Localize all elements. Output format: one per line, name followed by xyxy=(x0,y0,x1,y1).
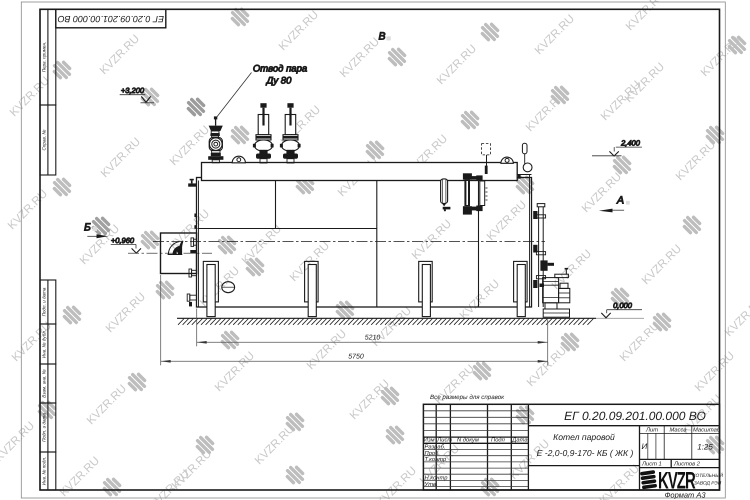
svg-text:KVZR.RU: KVZR.RU xyxy=(240,223,284,267)
svg-text:Взам. инв. №: Взам. инв. № xyxy=(42,369,47,397)
svg-text:KVZR.RU: KVZR.RU xyxy=(277,9,321,53)
svg-text:Б: Б xyxy=(84,222,91,234)
svg-text:+3,200: +3,200 xyxy=(121,86,145,95)
svg-text:KVZR.RU: KVZR.RU xyxy=(198,265,242,309)
svg-text:KVZR.RU: KVZR.RU xyxy=(598,463,642,500)
svg-text:KVZR.RU: KVZR.RU xyxy=(599,79,643,123)
svg-text:Подп. и дата: Подп. и дата xyxy=(42,287,47,316)
svg-text:Инв. № подл.: Инв. № подл. xyxy=(42,457,47,486)
svg-text:Инв. № дубл.: Инв. № дубл. xyxy=(42,330,47,358)
svg-text:KVZR.RU: KVZR.RU xyxy=(485,199,529,243)
svg-text:KVZR.RU: KVZR.RU xyxy=(104,291,148,335)
svg-text:Т.контр: Т.контр xyxy=(425,457,448,463)
svg-text:ЕГ 0.20.09.201.00.000 ВО: ЕГ 0.20.09.201.00.000 ВО xyxy=(564,409,706,423)
svg-text:KVZR.RU: KVZR.RU xyxy=(508,438,552,482)
svg-text:KVZR.RU: KVZR.RU xyxy=(524,90,568,134)
svg-text:Масса: Масса xyxy=(670,428,688,434)
svg-text:Дата: Дата xyxy=(511,438,528,444)
svg-text:ЕГ 0.20.09.201.00.000 ВО: ЕГ 0.20.09.201.00.000 ВО xyxy=(58,14,164,24)
svg-text:KVZR.RU: KVZR.RU xyxy=(99,136,143,180)
svg-text:KVZR.RU: KVZR.RU xyxy=(435,43,479,87)
svg-text:Лит: Лит xyxy=(645,428,658,434)
svg-text:KVZR.RU: KVZR.RU xyxy=(338,36,382,80)
svg-text:Ду 80: Ду 80 xyxy=(266,76,292,87)
svg-text:Масштаб: Масштаб xyxy=(693,427,721,434)
svg-text:KVZR.RU: KVZR.RU xyxy=(6,188,50,232)
svg-text:KVZR.RU: KVZR.RU xyxy=(0,420,37,464)
svg-text:ЗАВОД РЭП: ЗАВОД РЭП xyxy=(694,481,722,487)
svg-text:5750: 5750 xyxy=(348,353,364,360)
svg-text:Подп. и дата: Подп. и дата xyxy=(42,413,47,442)
svg-text:KVZR.RU: KVZR.RU xyxy=(580,171,624,215)
svg-text:KVZR.RU: KVZR.RU xyxy=(168,208,212,252)
svg-text:N докум: N докум xyxy=(457,437,479,444)
svg-text:Отвод пара: Отвод пара xyxy=(253,64,307,75)
svg-text:KVZR.RU: KVZR.RU xyxy=(213,350,257,394)
svg-text:Изм: Изм xyxy=(424,438,435,444)
svg-text:KVZR.RU: KVZR.RU xyxy=(624,0,668,33)
svg-text:5210: 5210 xyxy=(365,334,381,341)
svg-text:KVZR.RU: KVZR.RU xyxy=(693,350,737,394)
svg-text:Все размеры для справок: Все размеры для справок xyxy=(430,394,505,401)
svg-text:Перв. примен.: Перв. примен. xyxy=(42,42,47,73)
svg-text:KVZR.RU: KVZR.RU xyxy=(8,75,52,119)
svg-text:Утв.: Утв. xyxy=(424,482,438,488)
svg-text:Проб.: Проб. xyxy=(425,450,441,457)
svg-text:Е -2,0-0,9-170- КБ ( ЖК ): Е -2,0-0,9-170- КБ ( ЖК ) xyxy=(537,448,634,458)
svg-text:Листов 2: Листов 2 xyxy=(673,461,701,468)
svg-text:А: А xyxy=(616,195,624,207)
svg-text:KVZR.RU: KVZR.RU xyxy=(525,345,569,389)
svg-text:KVZR.RU: KVZR.RU xyxy=(533,13,577,57)
svg-text:Справ. №: Справ. № xyxy=(42,130,47,151)
svg-text:KVZR.RU: KVZR.RU xyxy=(640,243,684,287)
svg-text:KVZR.RU: KVZR.RU xyxy=(98,33,142,77)
svg-text:KVZR.RU: KVZR.RU xyxy=(458,278,502,322)
svg-text:KVZR.RU: KVZR.RU xyxy=(168,124,212,168)
svg-text:+0,960: +0,960 xyxy=(111,236,135,245)
svg-text:Разраб.: Разраб. xyxy=(425,444,446,451)
svg-text:2,400: 2,400 xyxy=(620,139,641,148)
svg-text:Формат А3: Формат А3 xyxy=(664,491,706,500)
svg-text:KVZR.RU: KVZR.RU xyxy=(674,139,718,183)
svg-text:Н.контр: Н.контр xyxy=(425,476,449,482)
svg-text:KVZR.RU: KVZR.RU xyxy=(253,423,297,467)
svg-text:KVZR.RU: KVZR.RU xyxy=(375,465,419,500)
svg-text:И: И xyxy=(642,442,648,451)
svg-text:1:25: 1:25 xyxy=(697,443,713,452)
svg-text:KVZR.RU: KVZR.RU xyxy=(85,383,129,427)
svg-text:В: В xyxy=(379,31,386,43)
svg-text:KVZR.RU: KVZR.RU xyxy=(410,218,454,262)
svg-text:KVZR.RU: KVZR.RU xyxy=(723,295,750,339)
svg-text:КОТЕЛЬНЫЙ: КОТЕЛЬНЫЙ xyxy=(693,472,724,479)
svg-text:KVZR.RU: KVZR.RU xyxy=(305,328,349,372)
svg-text:Лист: Лист xyxy=(436,438,452,444)
svg-text:0,000: 0,000 xyxy=(613,301,633,310)
svg-text:Котел паровой: Котел паровой xyxy=(553,432,615,442)
svg-text:KVZR.RU: KVZR.RU xyxy=(58,455,102,499)
svg-text:Подп: Подп xyxy=(491,437,506,444)
